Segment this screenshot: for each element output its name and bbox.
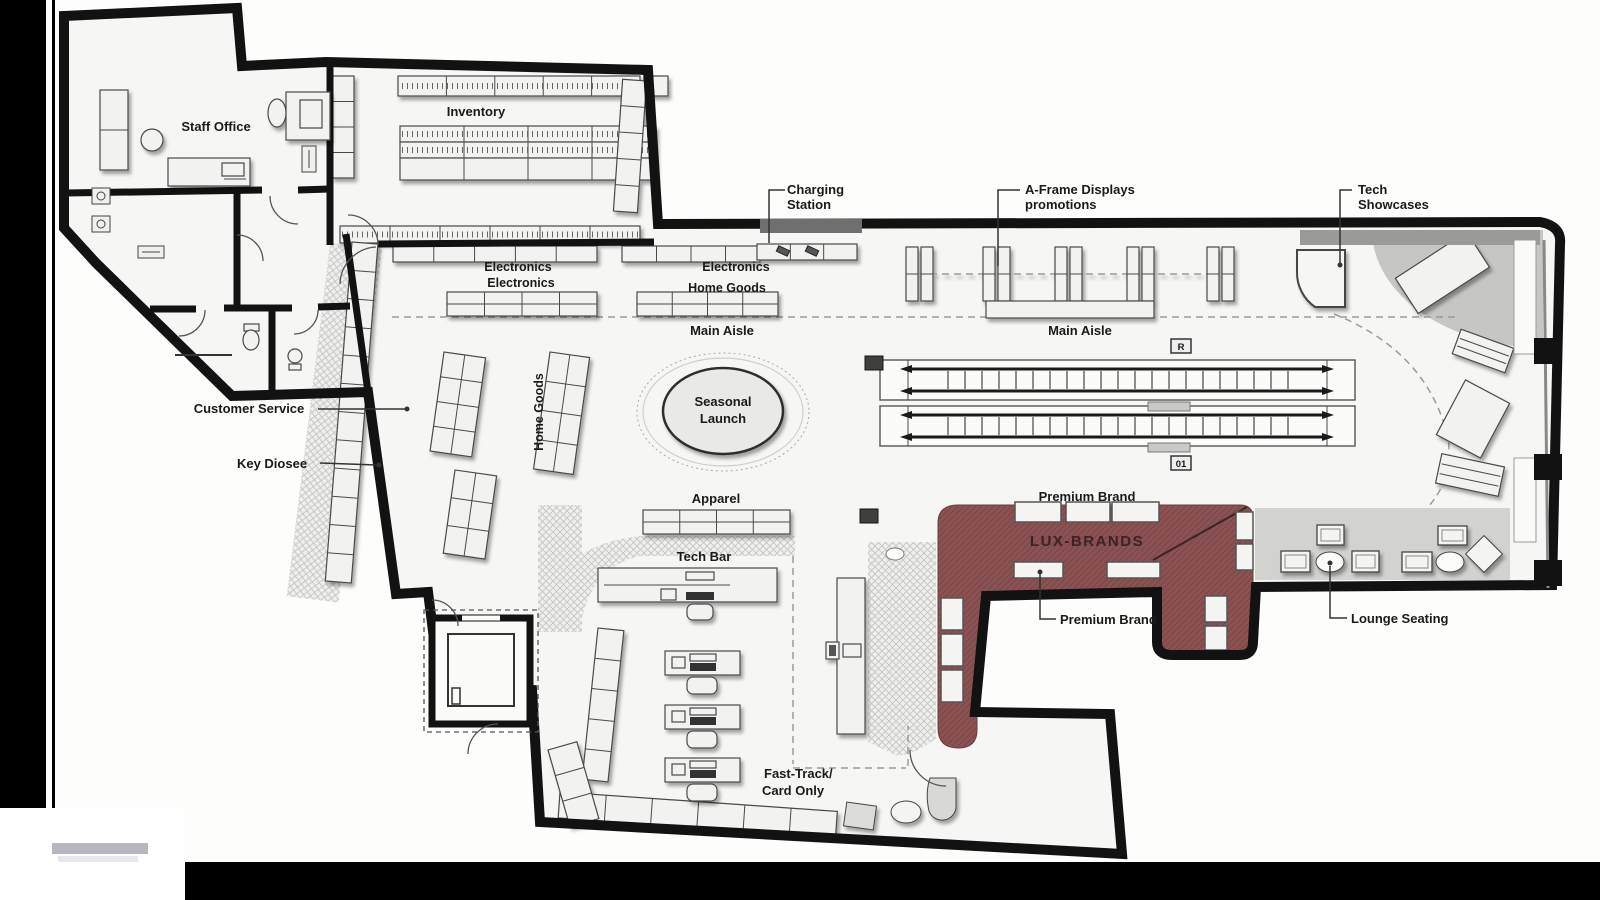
a-frame-display — [921, 247, 933, 301]
escalator-up-tag: R — [1171, 339, 1191, 353]
main-aisle-label: Main Aisle — [690, 323, 754, 338]
electronics-label: Electronics — [702, 260, 769, 274]
electronics-label: Electronics — [487, 276, 554, 290]
charging-wall-band — [760, 219, 862, 233]
shelf-row — [447, 292, 597, 316]
door-tag-icon — [92, 216, 110, 232]
premium-display — [1205, 626, 1227, 650]
elevator — [424, 610, 538, 732]
tech-bar-label: Tech Bar — [677, 549, 732, 564]
a-frame-callout: promotions — [1025, 197, 1097, 212]
escalators — [880, 360, 1355, 452]
a-frame-display — [998, 247, 1010, 301]
a-frame-display — [983, 247, 995, 301]
fast-track-label: Card Only — [762, 783, 825, 798]
escalator-down-tag: 01 — [1171, 456, 1191, 470]
premium-display — [941, 634, 963, 666]
premium-display — [941, 670, 963, 702]
lounge-chair — [1281, 551, 1310, 572]
tech-showcases-callout: Tech — [1358, 182, 1387, 197]
premium-display — [1236, 544, 1253, 570]
apparel-label: Apparel — [692, 491, 740, 506]
charging-station-callout: Charging — [787, 182, 844, 197]
a-frame-display — [1207, 247, 1219, 301]
home-goods-wall-label: Home Goods — [532, 373, 546, 451]
seasonal-launch-label: Seasonal — [694, 394, 751, 409]
column-icon — [1534, 338, 1562, 364]
customer-service-callout: Customer Service — [194, 401, 305, 416]
door-tag-icon — [302, 146, 316, 172]
column-icon — [860, 509, 878, 523]
shelf-row — [398, 76, 640, 96]
shelf-row — [332, 76, 354, 178]
lounge-chair — [1402, 552, 1432, 572]
premium-brand-top-label: Premium Brand — [1039, 489, 1136, 504]
premium-display — [1066, 502, 1110, 522]
cart-icon — [826, 642, 861, 659]
a-frame-callout: A-Frame Displays — [1025, 182, 1135, 197]
column-icon — [865, 356, 883, 370]
premium-display — [1015, 502, 1061, 522]
shelf-row — [637, 292, 778, 316]
key-diosee-callout: Key Diosee — [237, 456, 307, 471]
home-goods-label: Home Goods — [688, 281, 766, 295]
lounge-table — [1436, 552, 1464, 572]
premium-display — [941, 598, 963, 630]
escalator — [880, 406, 1355, 446]
column-icon — [1534, 454, 1562, 480]
premium-display — [1107, 562, 1160, 578]
premium-display — [1236, 512, 1253, 540]
lounge-chair — [1317, 525, 1344, 545]
shelf-row — [643, 510, 790, 534]
seasonal-launch-label: Launch — [700, 411, 746, 426]
inventory-label: Inventory — [447, 104, 506, 119]
escalator — [880, 360, 1355, 400]
lounge-chair — [1438, 526, 1467, 545]
premium-display — [1205, 596, 1227, 622]
lounge-chair — [1352, 551, 1379, 572]
a-frame-display — [1222, 247, 1234, 301]
toilet-icon — [243, 324, 259, 350]
floor-marker — [886, 548, 904, 560]
premium-brand-bottom-callout: Premium Brand — [1060, 612, 1157, 627]
door-tag-icon — [92, 188, 110, 204]
staff-office-label: Staff Office — [181, 119, 250, 134]
a-frame-platform — [986, 301, 1154, 318]
toilet-icon — [288, 349, 302, 370]
svg-text:01: 01 — [1176, 459, 1187, 470]
tech-showcases-callout: Showcases — [1358, 197, 1429, 212]
column-icon — [1534, 560, 1562, 586]
sheet-edge-line — [46, 0, 52, 812]
a-frame-display — [1127, 247, 1139, 301]
shelf-row — [400, 126, 656, 142]
svg-text:R: R — [1178, 342, 1185, 353]
a-frame-display — [1055, 247, 1067, 301]
floor-plan-canvas: R 01 Staff Office Inventory Electronics … — [0, 0, 1600, 900]
showcase-wall-band — [1300, 230, 1540, 245]
fast-track-label: Fast-Track/ — [764, 766, 833, 781]
a-frame-display — [1070, 247, 1082, 301]
premium-display — [1112, 502, 1159, 522]
electronics-label: Electronics — [484, 260, 551, 274]
watermark-cover — [0, 808, 185, 900]
main-aisle-label: Main Aisle — [1048, 323, 1112, 338]
door-tag-icon — [138, 246, 164, 258]
tech-bar-desks — [665, 651, 740, 801]
charging-station-callout: Station — [787, 197, 831, 212]
floor-plan-image: R 01 Staff Office Inventory Electronics … — [0, 0, 1600, 900]
a-frame-display — [1142, 247, 1154, 301]
lounge-seating-callout: Lounge Seating — [1351, 611, 1449, 626]
a-frame-display — [906, 247, 918, 301]
lux-brands-label: LUX-BRANDS — [1030, 533, 1144, 550]
bottom-border — [185, 862, 1600, 900]
